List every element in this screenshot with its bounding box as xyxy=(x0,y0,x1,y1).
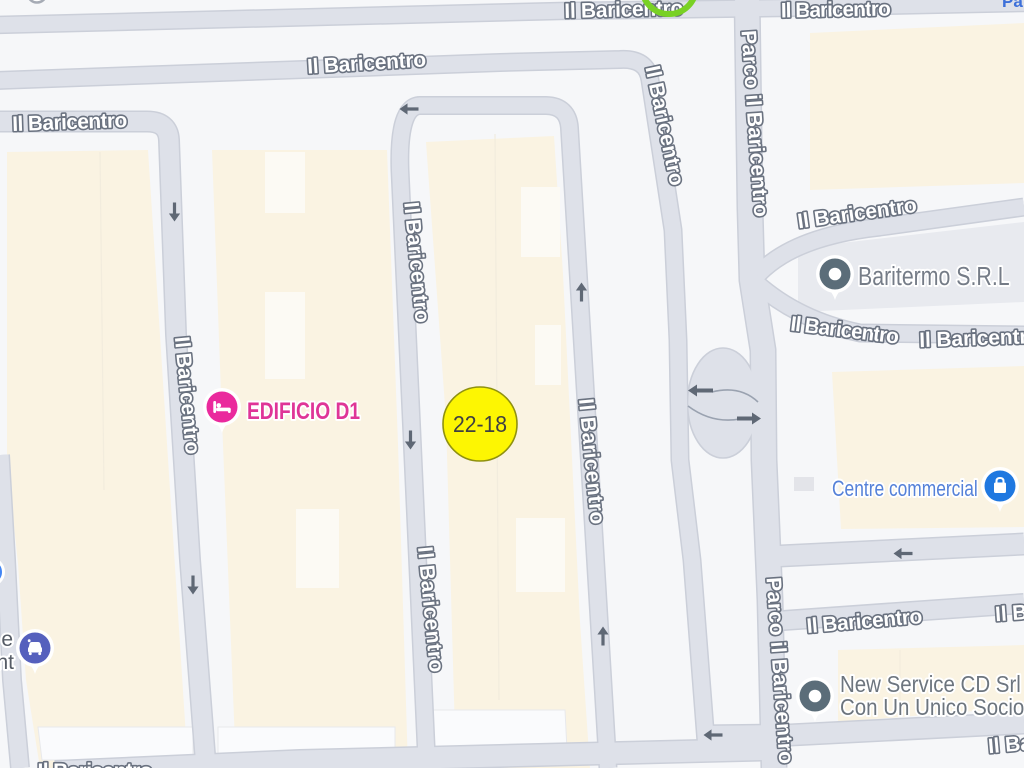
svg-text:Con Un Unico Socio: Con Un Unico Socio xyxy=(840,694,1024,720)
svg-text:Il Baricentro: Il Baricentro xyxy=(919,325,1024,352)
svg-text:Centre commercial: Centre commercial xyxy=(832,477,978,501)
svg-text:Pa: Pa xyxy=(1002,0,1023,11)
svg-text:Il Baricentro: Il Baricentro xyxy=(12,109,128,136)
svg-text:e: e xyxy=(1,628,13,651)
svg-text:Il Baricentro: Il Baricentro xyxy=(38,760,153,768)
svg-text:22-18: 22-18 xyxy=(453,411,507,437)
svg-text:Il Baricentro: Il Baricentro xyxy=(781,0,891,22)
svg-text:Baritermo S.R.L: Baritermo S.R.L xyxy=(858,262,1010,292)
svg-text:nt: nt xyxy=(0,651,14,674)
svg-text:EDIFICIO D1: EDIFICIO D1 xyxy=(247,397,360,425)
